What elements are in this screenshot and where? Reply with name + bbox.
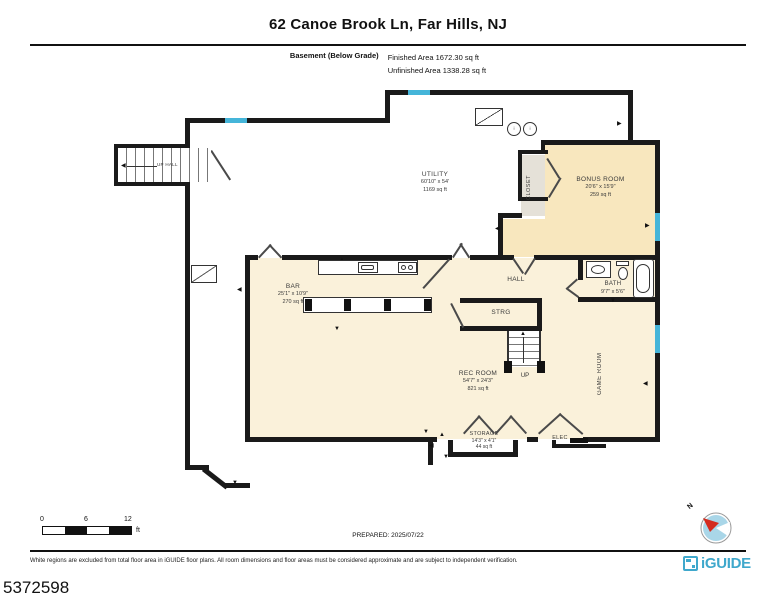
disclaimer-text: White regions are excluded from total fl… (30, 558, 630, 564)
iguide-logo: iGUIDE (683, 555, 751, 572)
direction-arrow: ▼ (334, 326, 340, 332)
water-heater-icon (475, 108, 503, 126)
room-label-bar: BAR 25'1" x 10'9" 270 sq ft (253, 283, 333, 306)
direction-arrow: ◀ (429, 443, 434, 449)
wall-segment (518, 150, 522, 201)
wall-segment (527, 437, 538, 442)
prepared-date: PREPARED: 2025/07/22 (0, 532, 776, 539)
direction-arrow: ▼ (610, 298, 616, 304)
bar-stool (424, 299, 431, 311)
wall-segment (655, 140, 660, 442)
wall-segment (448, 452, 518, 457)
compass-icon (695, 506, 735, 546)
vanity-sink-icon (586, 261, 611, 278)
direction-arrow: ▲ (439, 432, 445, 438)
direction-arrow: ◀ (495, 226, 500, 232)
footer-divider (30, 550, 746, 552)
floor-plan: ◀▲▼▼◀▲▼◀▼▼◀◀▶▶ ◀ UP HALL ▲ UP ⁝ ⁝ (0, 0, 776, 600)
wall-segment (583, 437, 660, 442)
tank-icon: ⁝ (523, 122, 537, 136)
stair-wall-cap (537, 361, 545, 373)
direction-arrow: ◀ (643, 381, 648, 387)
sink-basin (361, 265, 374, 270)
room-label-storage: STORAGE 14'3" x 4'1" 44 sq ft (452, 431, 516, 450)
wall-segment (556, 444, 606, 448)
wall-segment (498, 213, 522, 218)
stair-direction-arrow: ◀ (121, 163, 126, 169)
room-label-hall: HALL (486, 276, 546, 284)
wall-segment (185, 118, 190, 152)
stair-up-hall-label: UP HALL (157, 162, 209, 167)
burner (408, 265, 413, 270)
stair-direction-line (127, 166, 157, 167)
toilet-tank (616, 261, 629, 266)
wall-segment (245, 437, 437, 442)
door-leaf (258, 244, 271, 258)
room-label-game-room: GAME ROOM (597, 338, 603, 410)
toilet-icon (618, 267, 628, 280)
bar-stool (344, 299, 351, 311)
wall-segment (518, 197, 548, 201)
window-marker (225, 118, 247, 123)
wall-segment (628, 90, 633, 145)
direction-arrow: ▼ (232, 480, 238, 486)
window-marker (655, 325, 660, 353)
tank-icon: ⁝ (507, 122, 521, 136)
direction-arrow: ◀ (237, 287, 242, 293)
bar-stool (384, 299, 391, 311)
closet-floor (521, 155, 545, 216)
wall-segment (202, 467, 229, 489)
iguide-logo-text: iGUIDE (701, 555, 751, 572)
wall-segment (498, 213, 503, 259)
room-label-bath: BATH 9'7" x 5'6" (585, 281, 641, 296)
scale-tick-12: 12 (124, 516, 132, 523)
bonus-room-floor (545, 143, 655, 257)
door-leaf (269, 244, 282, 258)
sink-basin (591, 265, 605, 274)
direction-arrow: ▶ (645, 223, 650, 229)
scale-tick-0: 0 (40, 516, 44, 523)
room-label-utility: UTILITY 60'10" x 54' 1169 sq ft (385, 171, 485, 194)
wall-segment (114, 182, 190, 186)
window-marker (655, 213, 660, 241)
bonus-room-floor (502, 219, 545, 257)
floor-plan-page: 62 Canoe Brook Ln, Far Hills, NJ Basemen… (0, 0, 776, 600)
bar-sink-icon (358, 262, 378, 273)
stair-direction-arrow: ▲ (520, 331, 526, 337)
room-label-rec-room: REC ROOM 54'7" x 24'3" 821 sq ft (428, 370, 528, 393)
wall-segment (185, 118, 390, 123)
wall-segment (518, 150, 548, 154)
room-label-bonus-room: BONUS ROOM 20'6" x 15'9" 259 sq ft (548, 176, 653, 199)
room-label-strg: STRG (470, 309, 532, 317)
door-leaf (211, 150, 231, 180)
door-leaf (452, 243, 463, 258)
direction-arrow: ▼ (423, 429, 429, 435)
photo-id: 5372598 (3, 578, 69, 598)
iguide-logo-icon (683, 556, 698, 571)
window-marker (408, 90, 430, 95)
room-label-closet: CLOSET (526, 163, 532, 211)
burner (401, 265, 406, 270)
scale-tick-6: 6 (84, 516, 88, 523)
cooktop-icon (398, 262, 417, 273)
wall-segment (185, 180, 190, 470)
wall-segment (470, 255, 514, 260)
direction-arrow: ▶ (617, 121, 622, 127)
wall-segment (545, 140, 660, 145)
water-heater-icon (191, 265, 217, 283)
wall-segment (245, 255, 250, 442)
wall-segment (460, 298, 542, 303)
stair-direction-line (523, 337, 524, 363)
direction-arrow: ▼ (443, 454, 449, 460)
room-label-elec: ELEC (543, 435, 577, 442)
